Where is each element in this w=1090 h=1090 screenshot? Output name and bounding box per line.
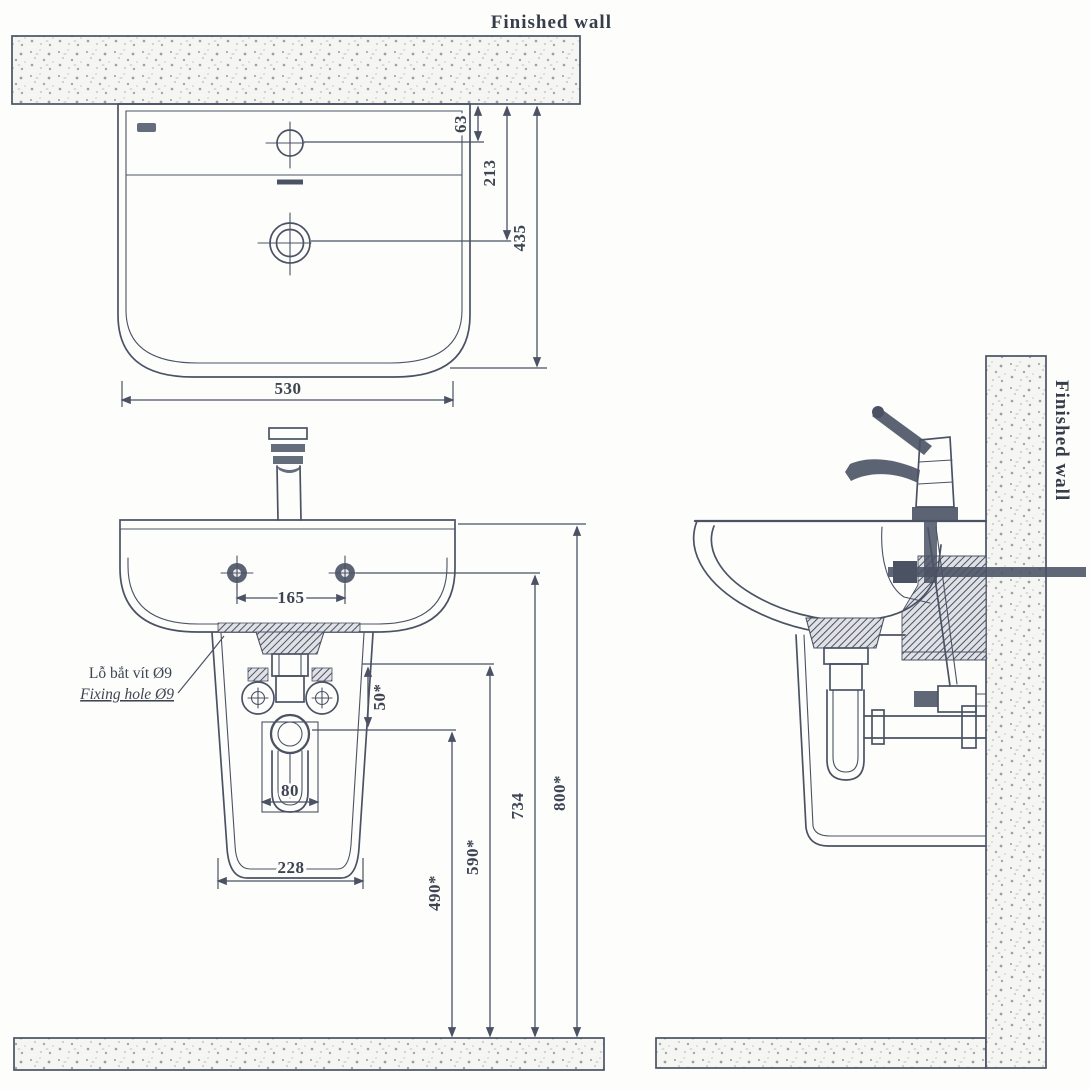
dim-213: 213 — [480, 160, 499, 187]
side-view: Finished wall — [656, 356, 1086, 1068]
dim-165: 165 — [278, 588, 305, 607]
dim-435: 435 — [510, 225, 529, 252]
faucet-front — [269, 428, 307, 520]
valve-body-right — [312, 668, 332, 681]
top-view: Finished wall 63 213 435 — [12, 12, 612, 407]
trap-nut — [271, 715, 309, 753]
fixing-hole-label-en: Fixing hole Ø9 — [79, 686, 174, 703]
dim-590: 590* — [463, 839, 482, 875]
dim-50: 50* — [370, 684, 389, 711]
wall-section-side — [986, 356, 1046, 1068]
top-view-wall-section — [12, 36, 580, 104]
faucet-spout-side — [845, 459, 920, 483]
supply-valve-left — [242, 682, 274, 714]
front-view: 165 8 — [14, 428, 604, 1070]
faucet-lever-knob — [872, 406, 884, 418]
dim-530: 530 — [275, 379, 302, 398]
pedestal-outline-front — [212, 633, 373, 878]
drain-hole — [258, 213, 311, 275]
mounting-bracket-front — [218, 623, 360, 632]
faucet-hole — [266, 122, 304, 168]
fixing-hole-label-vi: Lỗ bắt vít Ø9 — [89, 665, 172, 682]
drain-nut-side — [824, 648, 868, 664]
faucet-shank-side — [924, 521, 937, 583]
dim-734: 734 — [508, 793, 527, 820]
waste-pipe-collar — [872, 710, 884, 744]
valve-body-left — [248, 668, 268, 681]
dim-228: 228 — [278, 858, 305, 877]
fixing-hole-leader-line — [178, 636, 224, 693]
angle-valve-body — [938, 686, 976, 712]
dim-490: 490* — [425, 875, 444, 911]
angle-valve-handle — [914, 691, 938, 707]
floor-section-front — [14, 1038, 604, 1070]
dim-80: 80 — [281, 781, 299, 800]
dim-800: 800* — [550, 775, 569, 811]
brand-logo-mark — [137, 123, 156, 132]
dim-63: 63 — [451, 115, 470, 133]
sink-installation-drawing: Finished wall 63 213 435 — [0, 0, 1090, 1090]
drain-trap-assembly-front: 80 — [242, 632, 338, 812]
tailpipe-side — [830, 664, 862, 690]
drain-flange-side — [806, 618, 884, 648]
basin-outline-front — [120, 520, 455, 632]
finished-wall-label-top: Finished wall — [491, 12, 612, 33]
fixing-hole-annotation: Lỗ bắt vít Ø9 Fixing hole Ø9 — [79, 636, 224, 703]
pedestal-side — [796, 635, 986, 846]
floor-section-side — [656, 1038, 986, 1068]
pedestal-inner-line-front — [221, 633, 364, 869]
drain-pipe-mid — [276, 676, 304, 702]
technical-drawing-page: Finished wall 63 213 435 — [0, 0, 1090, 1090]
drain-flange — [256, 632, 324, 654]
drain-tailpiece — [272, 654, 308, 676]
supply-valve-right — [306, 682, 338, 714]
faucet-base-side — [912, 507, 958, 521]
basin-inner-rim-top — [126, 111, 462, 363]
finished-wall-label-side: Finished wall — [1051, 380, 1072, 501]
